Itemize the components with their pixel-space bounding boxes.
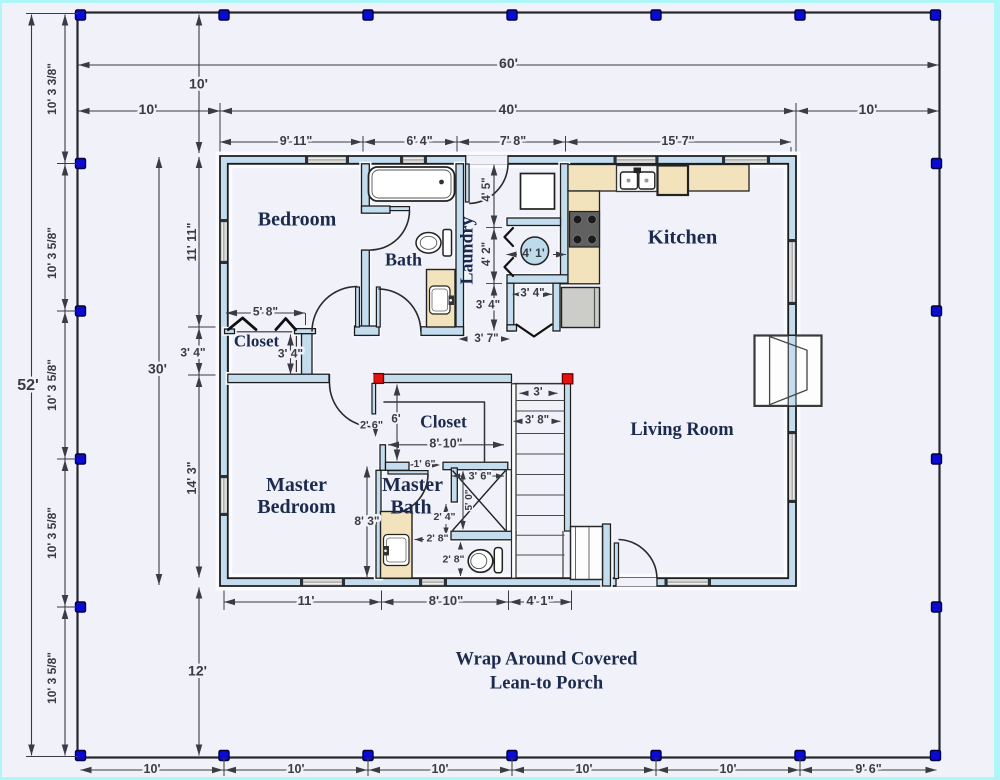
svg-text:10': 10' xyxy=(144,762,161,776)
svg-text:3' 4": 3' 4" xyxy=(180,346,205,360)
svg-text:Lean-to Porch: Lean-to Porch xyxy=(490,673,604,693)
svg-text:2' 8": 2' 8" xyxy=(426,532,448,544)
svg-text:10': 10' xyxy=(288,762,305,776)
svg-text:3' 8": 3' 8" xyxy=(525,414,549,426)
svg-text:10': 10' xyxy=(189,76,208,92)
svg-text:8' 10": 8' 10" xyxy=(429,437,462,451)
svg-text:8' 10": 8' 10" xyxy=(429,593,464,608)
svg-text:10' 3 5/8": 10' 3 5/8" xyxy=(45,227,59,279)
svg-text:4' 2": 4' 2" xyxy=(481,242,493,266)
svg-text:15' 7": 15' 7" xyxy=(661,134,694,148)
svg-text:12': 12' xyxy=(188,663,207,679)
svg-text:Bath: Bath xyxy=(385,250,422,270)
svg-text:3' 4": 3' 4" xyxy=(278,347,303,361)
svg-text:10': 10' xyxy=(720,762,737,776)
svg-text:52': 52' xyxy=(17,377,39,394)
svg-text:Living Room: Living Room xyxy=(630,420,734,440)
svg-text:3' 7": 3' 7" xyxy=(474,333,498,345)
svg-text:Master: Master xyxy=(266,474,327,496)
svg-text:4' 1': 4' 1' xyxy=(522,246,545,260)
svg-text:10': 10' xyxy=(859,101,878,117)
svg-text:3': 3' xyxy=(533,386,542,398)
svg-text:Bedroom: Bedroom xyxy=(258,209,337,231)
svg-text:8' 3": 8' 3" xyxy=(354,514,379,528)
svg-text:10' 3 3/8": 10' 3 3/8" xyxy=(45,63,59,115)
svg-text:10': 10' xyxy=(576,762,593,776)
svg-text:7' 8": 7' 8" xyxy=(500,134,526,148)
svg-text:10' 3 5/8": 10' 3 5/8" xyxy=(45,507,59,559)
svg-text:5' 0": 5' 0" xyxy=(464,489,475,510)
svg-text:10': 10' xyxy=(432,762,449,776)
svg-text:11' 11": 11' 11" xyxy=(185,223,199,262)
svg-text:2' 6": 2' 6" xyxy=(360,419,383,431)
svg-text:Bedroom: Bedroom xyxy=(257,496,336,518)
svg-text:10' 3 5/8": 10' 3 5/8" xyxy=(45,652,59,704)
svg-text:3' 6": 3' 6" xyxy=(468,470,491,482)
svg-text:Closet: Closet xyxy=(234,331,280,350)
svg-text:30': 30' xyxy=(148,361,167,377)
svg-text:2' 4": 2' 4" xyxy=(433,511,455,523)
svg-text:9' 6": 9' 6" xyxy=(855,762,881,776)
svg-text:4' 5": 4' 5" xyxy=(481,177,493,201)
svg-text:10' 3 5/8": 10' 3 5/8" xyxy=(45,359,59,411)
svg-text:6' 4": 6' 4" xyxy=(406,134,432,148)
svg-text:9' 11": 9' 11" xyxy=(280,134,313,148)
svg-text:2' 8": 2' 8" xyxy=(442,553,464,565)
svg-text:5' 8": 5' 8" xyxy=(253,305,278,319)
svg-text:6': 6' xyxy=(391,414,400,426)
svg-text:Bath: Bath xyxy=(390,497,431,519)
svg-text:Master: Master xyxy=(382,474,443,496)
svg-text:Kitchen: Kitchen xyxy=(648,227,718,249)
svg-text:40': 40' xyxy=(499,101,518,117)
svg-text:4' 1": 4' 1" xyxy=(526,593,553,608)
svg-text:Wrap Around Covered: Wrap Around Covered xyxy=(456,649,639,669)
svg-text:Closet: Closet xyxy=(420,412,467,432)
svg-text:14' 3": 14' 3" xyxy=(185,461,199,494)
svg-text:11': 11' xyxy=(298,593,315,608)
svg-text:1' 6": 1' 6" xyxy=(413,458,435,470)
svg-text:Laundry: Laundry xyxy=(457,216,477,284)
svg-text:60': 60' xyxy=(499,55,518,71)
svg-text:3' 4": 3' 4" xyxy=(476,300,500,312)
svg-text:3' 4": 3' 4" xyxy=(520,288,544,300)
svg-text:10': 10' xyxy=(139,101,158,117)
